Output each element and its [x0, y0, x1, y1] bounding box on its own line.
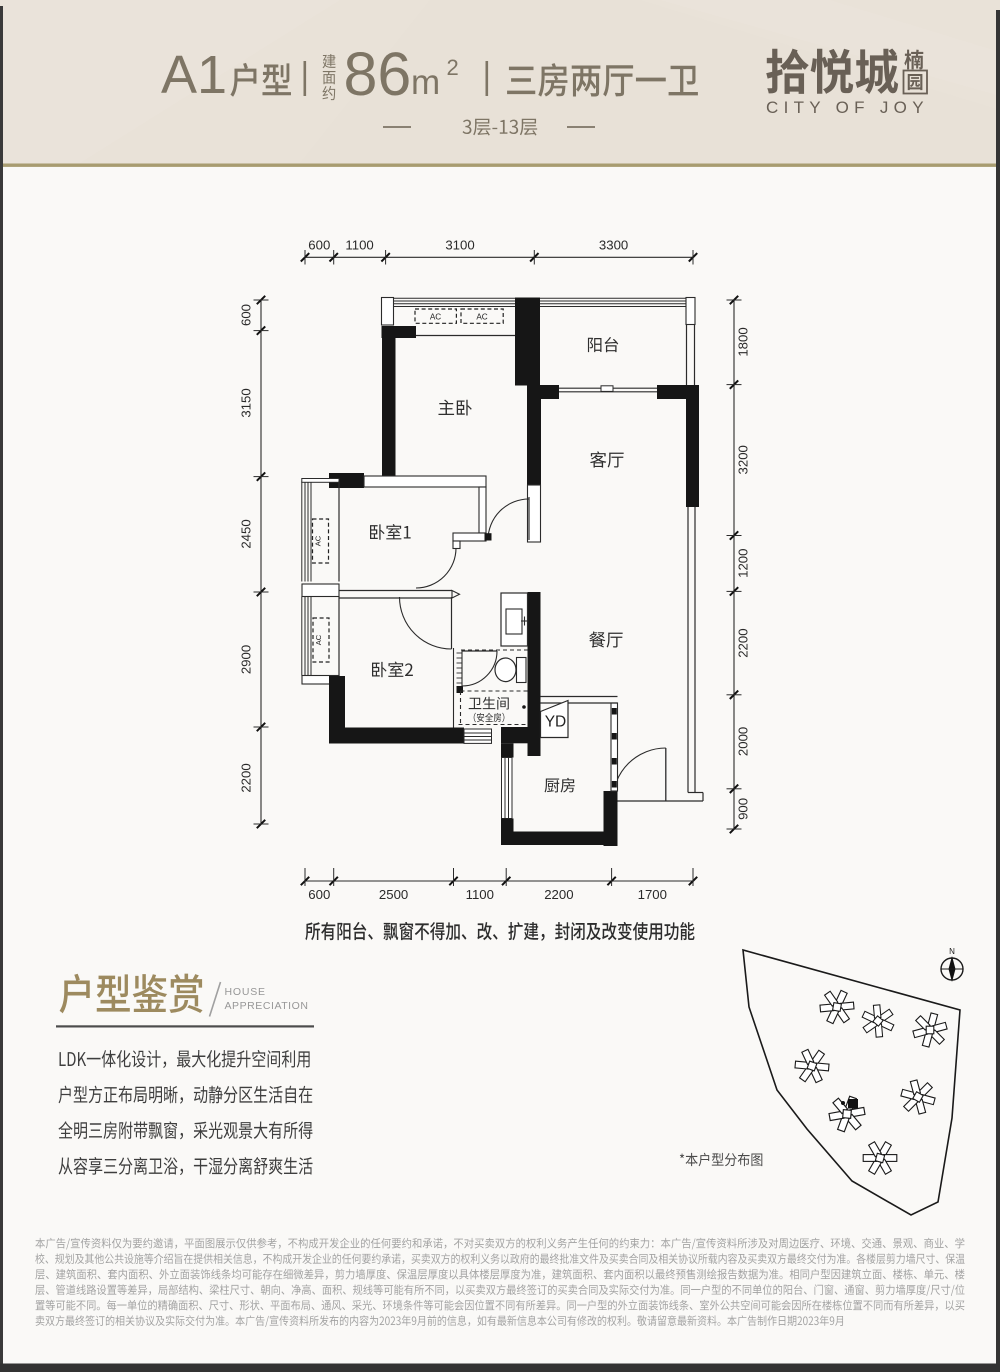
svg-text:3150: 3150	[239, 388, 254, 417]
svg-text:AC: AC	[430, 312, 441, 321]
svg-text:1100: 1100	[345, 238, 373, 253]
svg-text:600: 600	[308, 238, 330, 253]
svg-text:1800: 1800	[736, 327, 751, 356]
svg-text:600: 600	[239, 304, 254, 326]
svg-text:AC: AC	[476, 312, 487, 321]
svg-text:86: 86	[344, 40, 412, 108]
svg-text:CITY OF JOY: CITY OF JOY	[766, 98, 929, 117]
svg-text:m: m	[411, 63, 440, 102]
svg-text:2200: 2200	[544, 887, 573, 902]
svg-text:600: 600	[308, 887, 330, 902]
svg-text:2: 2	[447, 55, 459, 80]
svg-text:3200: 3200	[736, 445, 751, 474]
svg-text:2200: 2200	[239, 763, 254, 792]
svg-text:1200: 1200	[736, 549, 751, 578]
svg-text:HOUSE: HOUSE	[225, 986, 266, 998]
svg-text:2450: 2450	[239, 519, 254, 548]
svg-text:3300: 3300	[599, 238, 628, 253]
svg-text:3100: 3100	[445, 238, 474, 253]
svg-text:2200: 2200	[736, 628, 751, 657]
svg-text:1700: 1700	[638, 887, 667, 902]
svg-text:AC: AC	[314, 535, 323, 546]
svg-text:2500: 2500	[379, 887, 408, 902]
svg-text:1100: 1100	[466, 887, 494, 902]
svg-text:2900: 2900	[239, 645, 254, 674]
svg-text:APPRECIATION: APPRECIATION	[225, 1000, 309, 1012]
svg-text:YD: YD	[545, 714, 567, 731]
svg-text:AC: AC	[314, 634, 323, 645]
svg-text:N: N	[949, 947, 955, 956]
svg-text:A1: A1	[161, 45, 227, 105]
svg-text:900: 900	[736, 798, 751, 820]
svg-text:2000: 2000	[736, 727, 751, 756]
